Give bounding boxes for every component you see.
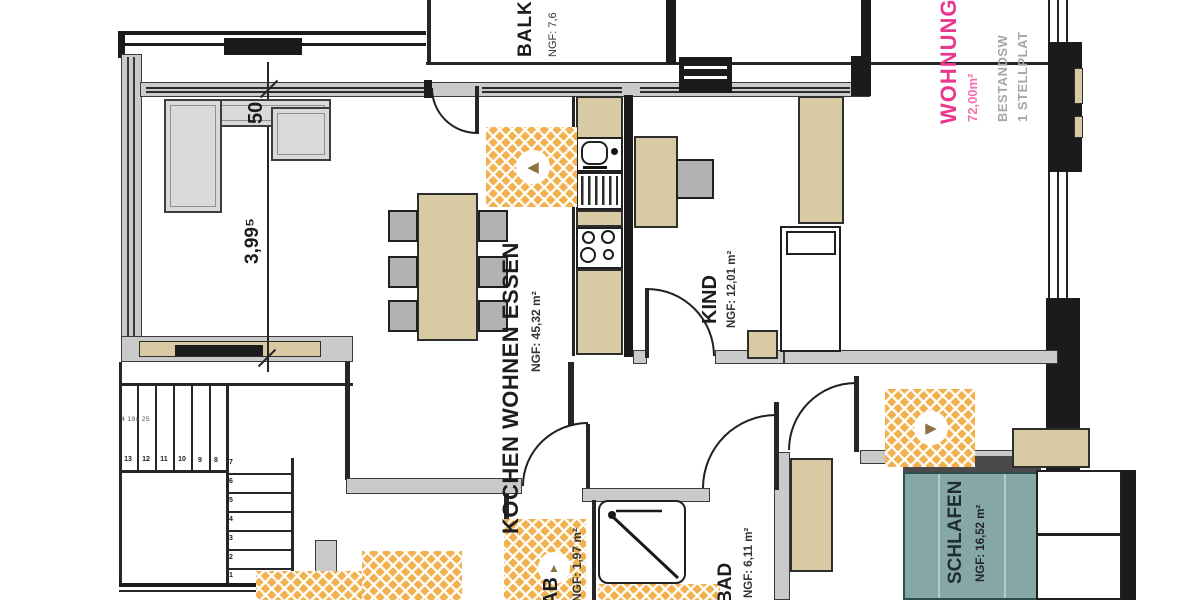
stair-number: 1 <box>224 572 238 579</box>
window-glazing <box>684 76 727 79</box>
stair-tread <box>229 492 293 494</box>
room-area-wohnen: NGF: 45,32 m² <box>530 291 542 372</box>
stove-burner <box>603 249 614 260</box>
hatched-area <box>256 571 364 600</box>
radiator <box>175 345 263 356</box>
wall-ab-right <box>592 500 596 600</box>
room-label-balkon: BALK <box>516 0 535 57</box>
stair-number: 13 <box>121 456 135 463</box>
direction-arrow-icon: ▶ <box>925 421 937 436</box>
wall-right-exterior <box>1122 470 1136 600</box>
stair-number: 2 <box>224 554 238 561</box>
bed-line <box>938 474 940 598</box>
sofa-armchair <box>271 107 331 161</box>
sink-faucet <box>611 148 618 155</box>
window-glazing <box>146 91 424 93</box>
apartment-note-1: BESTANDSW <box>996 35 1009 122</box>
apartment-area: 72,00m² <box>966 74 979 122</box>
window-glazing <box>482 87 622 89</box>
stair-tread <box>229 473 293 475</box>
dimension-label-50: 50 <box>246 102 266 124</box>
door-arc-bad <box>702 414 776 488</box>
apartment-title: WOHNUNG <box>938 0 960 124</box>
stair-right-edge <box>291 458 294 586</box>
stair-number: 10 <box>175 456 189 463</box>
stair-number: 9 <box>193 457 207 464</box>
window-glazing <box>482 91 622 93</box>
stair-left-edge <box>119 383 122 586</box>
stair-note: 4 19x 25 <box>121 416 150 423</box>
hatched-area <box>362 551 462 600</box>
room-area-schlafen: NGF: 16,52 m² <box>976 505 988 582</box>
room-area-abstell: NGF: 1,97 m² <box>571 528 583 600</box>
wardrobe <box>798 96 844 224</box>
room-label-schlafen: SCHLAFEN <box>946 481 965 584</box>
wall-sill <box>1074 116 1083 138</box>
parapet-line <box>118 31 426 35</box>
shower-tray <box>598 500 686 584</box>
wall-pier <box>851 56 871 96</box>
stair-tread <box>229 511 293 513</box>
nightstand <box>747 330 778 359</box>
sink-drainboard <box>583 166 607 169</box>
kitchen-counter <box>576 210 623 227</box>
wall-stairwell <box>345 362 350 480</box>
wall-room-bottom <box>784 350 1058 364</box>
kitchen-counter <box>576 96 623 139</box>
desk-chair <box>676 159 714 199</box>
window-glazing <box>127 57 129 344</box>
stair-tread <box>229 568 293 570</box>
bed-line <box>1004 474 1006 598</box>
window-glazing <box>146 87 424 89</box>
dishwasher-rack <box>581 176 618 205</box>
window-glazing <box>684 66 727 69</box>
room-area-bad: NGF: 6,11 m² <box>744 528 756 598</box>
wardrobe <box>1012 428 1090 468</box>
wall-living-hall <box>346 478 522 494</box>
window-strip <box>1048 172 1074 298</box>
stair-number: 6 <box>224 478 238 485</box>
wardrobe <box>790 458 833 572</box>
dining-chair <box>478 210 508 242</box>
stair-number: 8 <box>209 457 223 464</box>
window-box <box>679 57 732 93</box>
parapet-post <box>224 38 302 55</box>
wall-sill <box>1074 68 1083 104</box>
door-leaf <box>475 86 479 134</box>
balcony-divider-wall <box>666 0 676 64</box>
door-arc-living <box>522 422 588 486</box>
stair-number: 12 <box>139 456 153 463</box>
balcony-side-line <box>427 0 431 63</box>
wall-top-exterior <box>140 82 870 97</box>
wall-left-exterior <box>121 54 142 346</box>
balcony-floor-line <box>426 62 1056 65</box>
floor-plan: 13 12 11 10 9 8 7 6 5 4 3 2 1 4 19x 25 <box>0 0 1200 600</box>
dining-chair <box>388 300 418 332</box>
wall-right-exterior <box>1048 42 1082 172</box>
wall-kitchen-kind <box>624 95 633 357</box>
window-strip <box>1048 0 1074 42</box>
wall-stub <box>568 362 574 426</box>
stair-number: 4 <box>224 516 238 523</box>
stove-burner <box>582 231 595 244</box>
window-glazing <box>640 91 850 93</box>
stair-number: 7 <box>224 459 238 466</box>
dimension-label-399: 3,99⁵ <box>243 218 262 264</box>
direction-arrow-icon: ▲ <box>548 562 560 574</box>
shower-symbol <box>600 502 688 586</box>
room-area-kind: NGF: 12,01 m² <box>727 251 739 328</box>
door-arc-schlafen <box>788 382 856 450</box>
viewpoint-circle: ◀ <box>516 150 550 184</box>
stair-number: 3 <box>224 535 238 542</box>
direction-arrow-icon: ◀ <box>527 160 539 175</box>
room-label-bad: BAD <box>716 563 735 600</box>
kitchen-counter <box>576 269 623 355</box>
stair-tread <box>229 549 293 551</box>
bed-schlafen <box>903 472 1041 600</box>
room-label-wohnen: KOCHEN WOHNEN ESSEN <box>500 242 522 534</box>
door-leaf <box>586 424 590 488</box>
dining-chair <box>388 256 418 288</box>
door-leaf <box>774 402 779 490</box>
desk <box>634 136 678 228</box>
door-leaf <box>645 288 649 358</box>
room-area-balkon: NGF: 7,6 <box>548 12 559 57</box>
apartment-note-2: 1 STELLPLAT <box>1016 32 1029 122</box>
stove-burner <box>601 230 615 244</box>
room-label-kind: KIND <box>700 275 720 324</box>
door-leaf <box>854 376 859 452</box>
stair-number: 11 <box>157 456 171 463</box>
stove-burner <box>580 247 596 263</box>
dining-chair <box>388 210 418 242</box>
stair-number: 5 <box>224 497 238 504</box>
viewpoint-circle: ▶ <box>914 411 948 445</box>
room-label-abstell: AB <box>541 577 561 600</box>
window-glazing <box>640 87 850 89</box>
sofa-left-section <box>164 99 222 213</box>
pillow <box>786 231 836 255</box>
hatched-area <box>598 584 720 600</box>
door-arc-balcony <box>431 88 477 134</box>
sink-basin <box>581 141 608 165</box>
window-glazing <box>133 57 135 344</box>
stair-run-bottom <box>119 470 229 473</box>
wardrobe-divider <box>1038 533 1120 536</box>
stair-tread <box>229 530 293 532</box>
dining-table <box>417 193 478 341</box>
